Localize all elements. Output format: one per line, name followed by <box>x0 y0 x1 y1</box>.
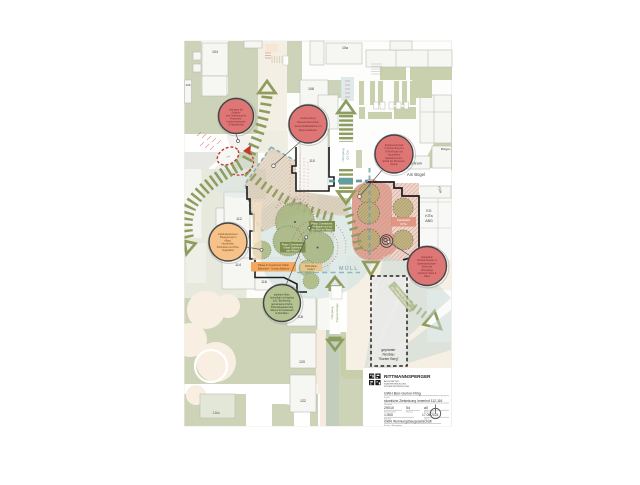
svg-text:RITTMANNSPERGER: RITTMANNSPERGER <box>384 374 431 379</box>
svg-text:Projektnummer: Projektnummer <box>384 410 397 413</box>
svg-text:Feste?: Feste? <box>308 268 316 271</box>
svg-text:& Paketdienste: & Paketdienste <box>228 124 244 127</box>
svg-text:Neubau: Neubau <box>383 353 395 357</box>
svg-text:1:500: 1:500 <box>384 413 393 417</box>
svg-text:Übergang: Übergang <box>341 148 345 162</box>
svg-text:Am Bügel: Am Bügel <box>407 172 425 177</box>
svg-text:räumliche Zielsetzung Innenhof: räumliche Zielsetzung Innenhof 112-116 <box>384 399 443 403</box>
svg-text:KITa: KITa <box>400 222 406 226</box>
svg-text:122: 122 <box>300 399 306 403</box>
svg-text:120: 120 <box>299 360 305 364</box>
svg-text:bäume: bäume <box>390 163 398 166</box>
svg-text:Bauherr / Auftraggeber: Bauherr / Auftraggeber <box>384 424 403 427</box>
svg-text:Maßstab: Maßstab <box>384 417 391 420</box>
svg-text:Feuerwehr,: Feuerwehr, <box>230 118 242 121</box>
svg-text:Rasenpflaster: Rasenpflaster <box>299 128 318 132</box>
svg-text:Bürger-: Bürger- <box>441 147 451 151</box>
svg-text:KITa: KITa <box>425 214 432 218</box>
svg-text:106: 106 <box>185 83 190 87</box>
svg-text:10a: 10a <box>342 46 348 50</box>
svg-text:Krankentransporte: Krankentransporte <box>227 121 247 124</box>
svg-text:geplanter: geplanter <box>381 348 396 352</box>
svg-text:Treppenanlage: Treppenanlage <box>335 303 339 323</box>
svg-text:116: 116 <box>261 280 267 284</box>
svg-text:a0: a0 <box>424 406 428 410</box>
svg-text:Zufahrts-: Zufahrts- <box>231 112 240 115</box>
svg-text:Planung: Planung <box>406 411 413 413</box>
svg-text:Datum: Datum <box>424 417 430 420</box>
svg-text:MÜLL: MÜLL <box>339 265 359 272</box>
svg-text:Balconies' - Umbau Balkone: Balconies' - Umbau Balkone <box>258 268 290 271</box>
svg-text:136a: 136a <box>212 411 219 415</box>
svg-text:Vegetation: Vegetation <box>222 249 234 252</box>
svg-text:Natur: Natur <box>424 275 430 278</box>
svg-text:QZ Ost: QZ Ost <box>346 150 350 160</box>
svg-text:104: 104 <box>212 50 218 54</box>
svg-text:EG: EG <box>426 209 431 213</box>
svg-text:Verlegung der: Verlegung der <box>229 109 244 112</box>
svg-text:54: 54 <box>406 406 410 410</box>
svg-text:GWH Ben-Gurion-Ring: GWH Ben-Gurion-Ring <box>384 392 421 396</box>
svg-text:Blattnummer: Blattnummer <box>424 410 435 413</box>
svg-text:Projekt: Projekt <box>384 396 390 399</box>
svg-text:29010: 29010 <box>384 406 394 410</box>
svg-text:oder Wiese?: oder Wiese? <box>286 249 300 252</box>
svg-text:108: 108 <box>308 87 314 91</box>
svg-text:110: 110 <box>309 159 315 163</box>
svg-text:114: 114 <box>235 263 241 267</box>
svg-text:bzw. Anlieferung für: bzw. Anlieferung für <box>226 115 246 118</box>
svg-text:ABG: ABG <box>425 219 433 223</box>
svg-text:& Aktivitäten: & Aktivitäten <box>275 312 289 315</box>
svg-text:"Bunter Berg": "Bunter Berg" <box>378 357 399 361</box>
svg-text:den Müll' am Wasch: den Müll' am Wasch <box>311 228 333 231</box>
svg-text:112: 112 <box>236 217 242 221</box>
svg-text:Übergang: Übergang <box>330 306 334 319</box>
svg-text:Planinhalt: Planinhalt <box>384 403 392 406</box>
svg-text:PROJEKTENTWICKLUNG: PROJEKTENTWICKLUNG <box>384 386 409 388</box>
